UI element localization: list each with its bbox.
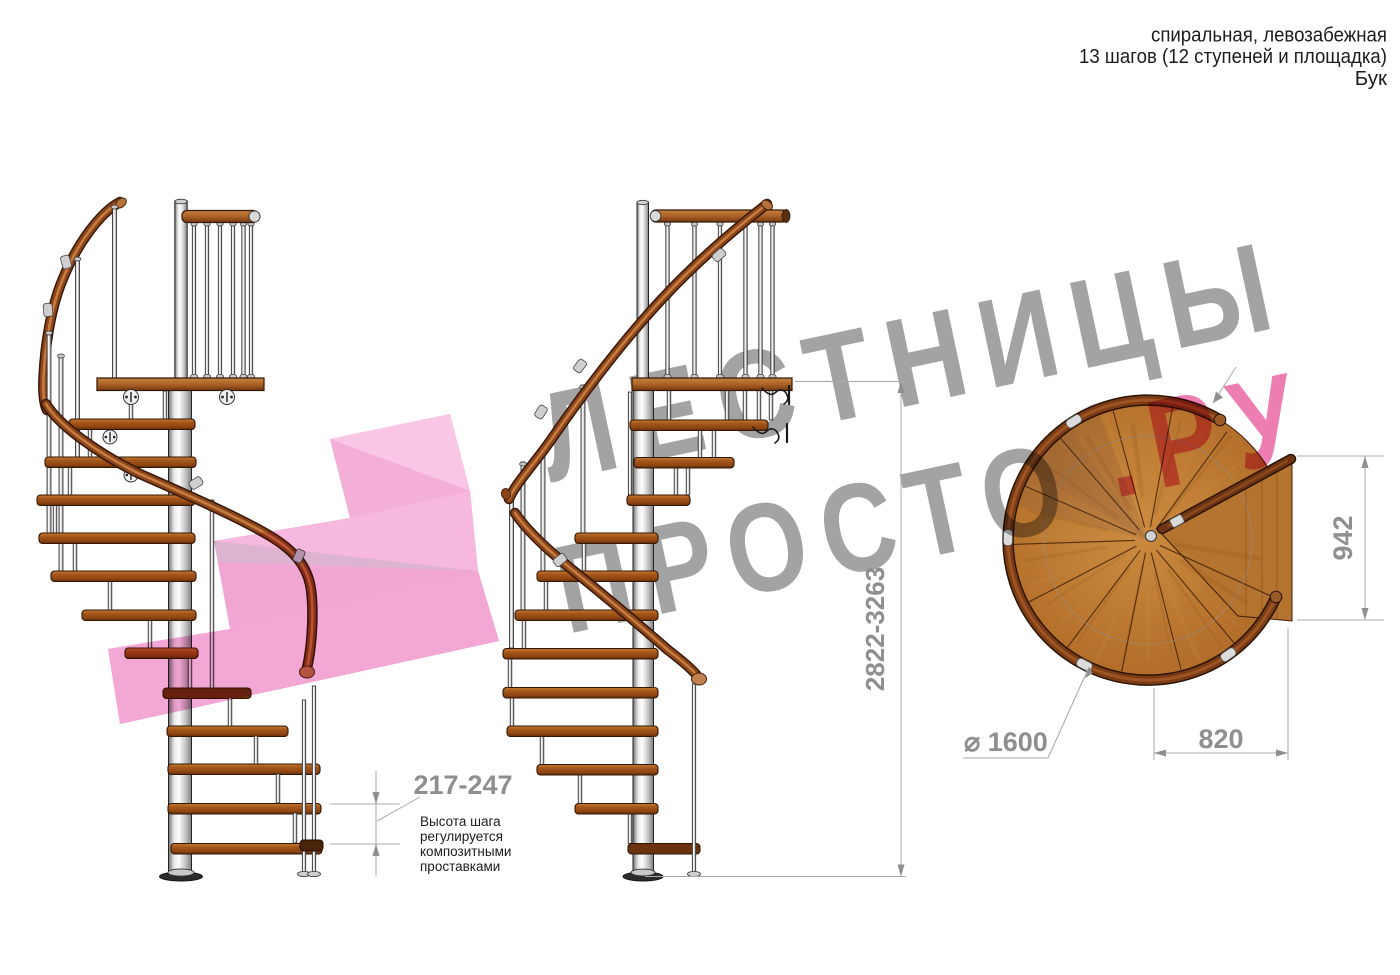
svg-text:Высота шага: Высота шага (420, 814, 501, 829)
svg-text:2822-3263: 2822-3263 (860, 567, 890, 691)
svg-text:13 шагов (12 ступеней и площад: 13 шагов (12 ступеней и площадка) (1079, 45, 1387, 68)
svg-text:проставками: проставками (420, 859, 500, 874)
svg-text:⌀ 1600: ⌀ 1600 (964, 727, 1048, 757)
svg-text:спиральная, левозабежная: спиральная, левозабежная (1151, 24, 1387, 47)
svg-text:820: 820 (1198, 724, 1243, 754)
svg-text:композитными: композитными (420, 844, 511, 859)
svg-text:217-247: 217-247 (413, 770, 512, 800)
svg-text:регулируется: регулируется (420, 829, 503, 844)
svg-text:Бук: Бук (1355, 67, 1388, 90)
svg-text:942: 942 (1328, 515, 1358, 560)
